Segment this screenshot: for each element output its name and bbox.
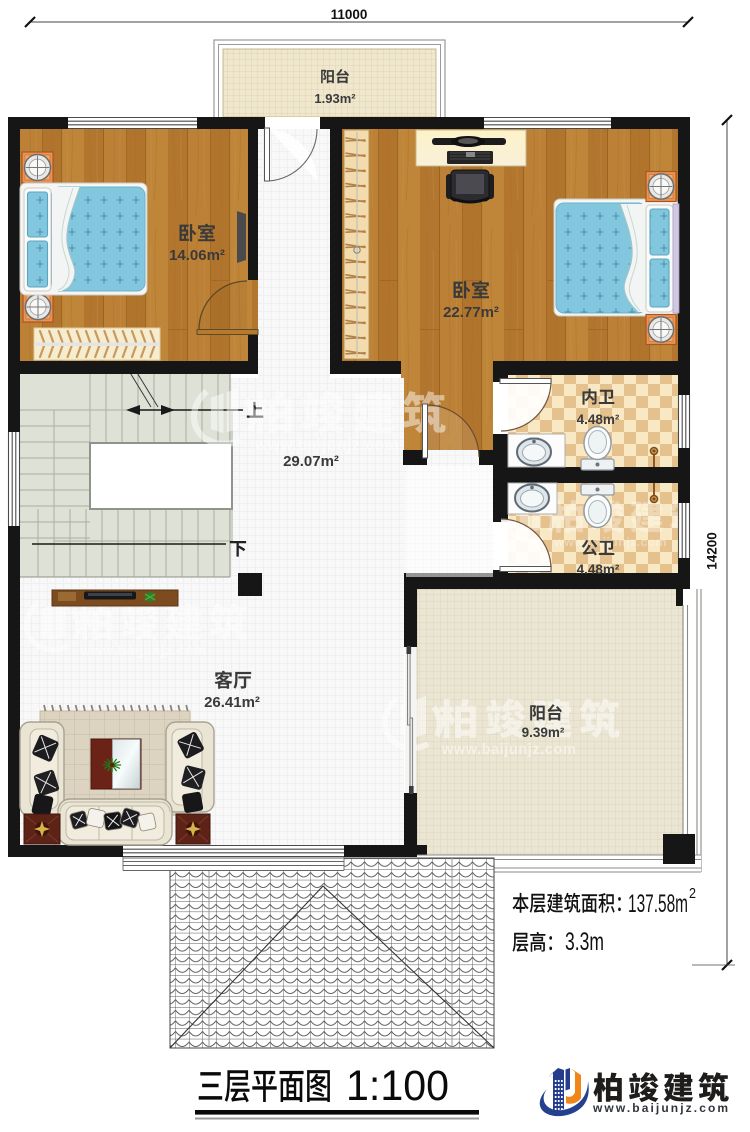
svg-text:www.baijunjz.com: www.baijunjz.com bbox=[254, 437, 399, 454]
svg-text:29.07m²: 29.07m² bbox=[283, 453, 339, 470]
svg-text:9.39m²: 9.39m² bbox=[522, 725, 565, 740]
svg-text:11000: 11000 bbox=[331, 7, 368, 22]
svg-text:3.3m: 3.3m bbox=[565, 928, 604, 956]
svg-text:22.77m²: 22.77m² bbox=[443, 304, 499, 321]
svg-text:www.baijunjz.com: www.baijunjz.com bbox=[592, 1101, 730, 1115]
svg-text:26.41m²: 26.41m² bbox=[204, 694, 260, 711]
svg-text:4.48m²: 4.48m² bbox=[577, 412, 620, 427]
svg-text:4.48m²: 4.48m² bbox=[577, 562, 620, 577]
svg-text:1:100: 1:100 bbox=[346, 1062, 449, 1110]
svg-text:2: 2 bbox=[689, 885, 696, 902]
svg-text:www.baijunjz.com: www.baijunjz.com bbox=[441, 742, 577, 758]
svg-text:14200: 14200 bbox=[705, 532, 720, 570]
svg-text:137.58m: 137.58m bbox=[628, 890, 688, 918]
svg-text:www.baijunjz.com: www.baijunjz.com bbox=[79, 643, 206, 658]
svg-text:1.93m²: 1.93m² bbox=[314, 91, 356, 106]
svg-text:14.06m²: 14.06m² bbox=[169, 247, 225, 264]
